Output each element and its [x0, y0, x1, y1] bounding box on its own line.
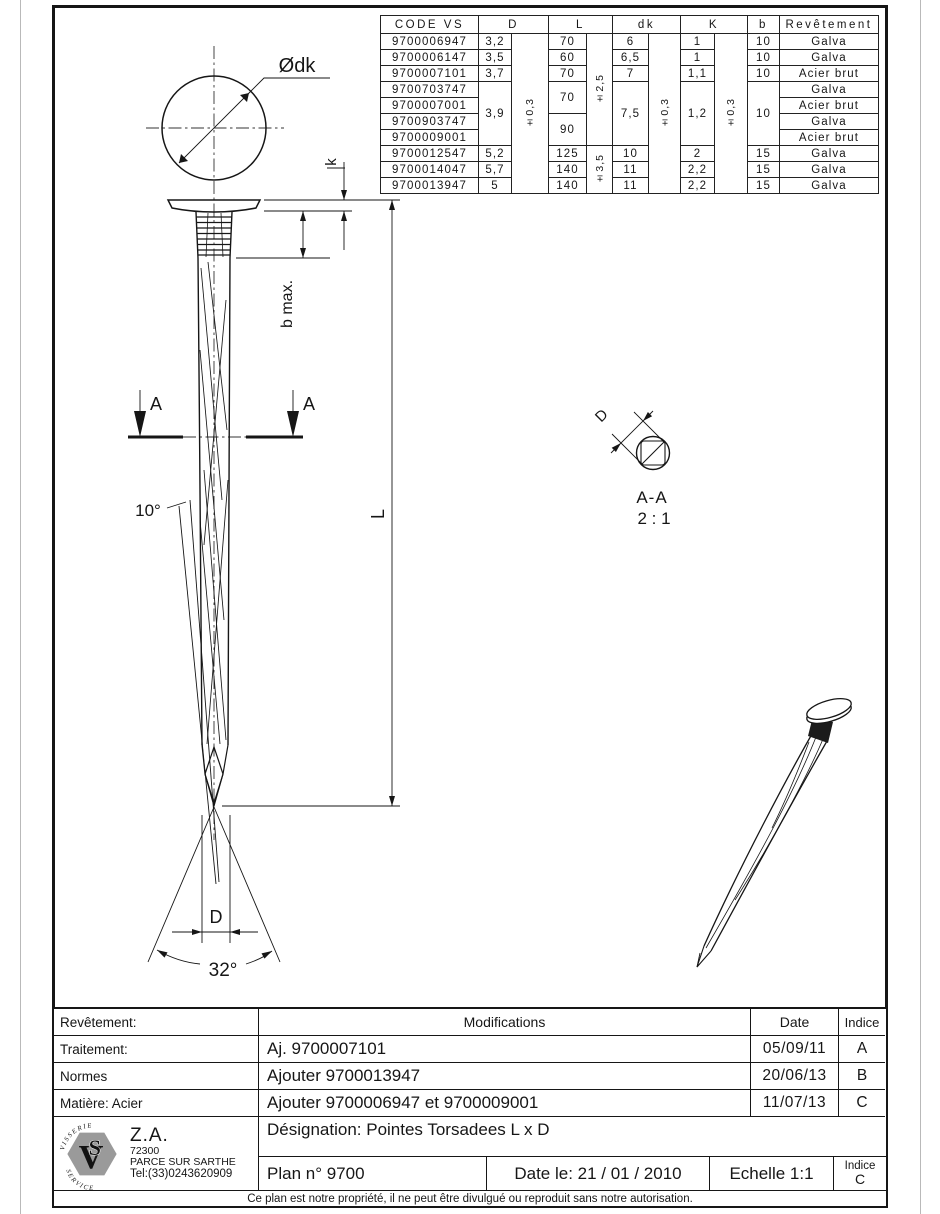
col-header-dk: dk	[613, 16, 681, 34]
dk-cell: 7	[613, 66, 649, 82]
logo-letter-s: S	[89, 1135, 101, 1159]
company-logo: V S V I S S E R I E S E R V I C E	[56, 1118, 128, 1190]
property-notice: Ce plan est notre propriété, il ne peut …	[54, 1190, 886, 1206]
indice-header: Indice	[839, 1009, 885, 1036]
k-cell: 2,2	[681, 162, 715, 178]
point-diameter-label: D	[210, 907, 223, 927]
company-city: PARCE SUR SARTHE	[130, 1157, 236, 1168]
indice-box: Indice C	[834, 1157, 886, 1190]
b-cell: 10	[748, 50, 780, 66]
matiere-label: Matière: Acier	[54, 1090, 259, 1117]
code-cell: 9700009001	[381, 130, 479, 146]
modification-date: 20/06/13	[751, 1063, 839, 1090]
modification-indice: A	[839, 1036, 885, 1063]
l-tolerance-top-cell: ±2,5	[587, 34, 613, 146]
d-cell: 3,2	[479, 34, 512, 50]
dk-cell: 11	[613, 162, 649, 178]
revetement-label: Revêtement:	[54, 1009, 259, 1036]
k-tolerance-cell: ±0,3	[715, 34, 748, 194]
traitement-label: Traitement:	[54, 1036, 259, 1063]
date-header: Date	[751, 1009, 839, 1036]
code-cell: 9700006947	[381, 34, 479, 50]
dk-tolerance-cell: ±0,3	[649, 34, 681, 194]
spec-row: 9700703747 3,9 70 7,5 1,2 10 Galva	[381, 82, 879, 98]
b-cell: 10	[748, 66, 780, 82]
l-tolerance-bottom-cell: ±3,5	[587, 146, 613, 194]
plan-number: Plan n° 9700	[259, 1157, 487, 1190]
b-cell: 10	[748, 34, 780, 50]
d-cell: 5	[479, 178, 512, 194]
modification-entry: Ajouter 9700013947	[259, 1063, 751, 1090]
designation: Désignation: Pointes Torsadees L x D	[259, 1117, 886, 1157]
rev-cell: Galva	[780, 114, 879, 130]
l-cell: 90	[549, 114, 587, 146]
plan-info-row: Plan n° 9700 Date le: 21 / 01 / 2010 Ech…	[259, 1157, 886, 1190]
head-diameter-label: Ødk	[279, 55, 317, 77]
company-cell: V S V I S S E R I E S E R V I C E Z.A. 7…	[54, 1117, 259, 1190]
section-scale: 2 : 1	[637, 509, 670, 528]
rev-cell: Acier brut	[780, 98, 879, 114]
ring-length-label: b max.	[279, 280, 296, 328]
code-cell: 9700703747	[381, 82, 479, 98]
k-cell: 1,2	[681, 82, 715, 146]
spec-row: 9700006947 3,2 ±0,3 70 ±2,5 6 ±0,3 1 ±0,…	[381, 34, 879, 50]
l-cell: 140	[549, 162, 587, 178]
d-cell: 3,9	[479, 82, 512, 146]
dk-cell: 10	[613, 146, 649, 162]
centerlines	[146, 46, 284, 840]
col-header-b: b	[748, 16, 780, 34]
l-cell: 125	[549, 146, 587, 162]
dimensions	[128, 162, 400, 964]
company-za: Z.A.	[130, 1126, 236, 1146]
dk-cell: 6,5	[613, 50, 649, 66]
spec-header-row: CODE VS D L dk K b Revêtement	[381, 16, 879, 34]
dk-cell: 6	[613, 34, 649, 50]
length-label: L	[368, 509, 388, 519]
modification-entry: Aj. 9700007101	[259, 1036, 751, 1063]
k-cell: 1,1	[681, 66, 715, 82]
d-cell: 3,7	[479, 66, 512, 82]
code-cell: 9700007101	[381, 66, 479, 82]
col-header-l: L	[549, 16, 613, 34]
modification-indice: B	[839, 1063, 885, 1090]
normes-label: Normes	[54, 1063, 259, 1090]
modifications-header: Modifications	[259, 1009, 751, 1036]
k-cell: 2	[681, 146, 715, 162]
modification-date: 11/07/13	[751, 1090, 839, 1117]
modifications-grid: Revêtement: Modifications Date Indice Tr…	[54, 1009, 886, 1117]
code-cell: 9700014047	[381, 162, 479, 178]
col-header-rev: Revêtement	[780, 16, 879, 34]
code-cell: 9700007001	[381, 98, 479, 114]
plan-date: Date le: 21 / 01 / 2010	[487, 1157, 710, 1190]
nail-point	[202, 745, 228, 806]
dimension-arrowheads	[134, 190, 395, 959]
spec-row: 9700012547 5,2 125 ±3,5 10 2 15 Galva	[381, 146, 879, 162]
rev-cell: Galva	[780, 162, 879, 178]
d-cell: 3,5	[479, 50, 512, 66]
b-cell: 15	[748, 178, 780, 194]
col-header-d: D	[479, 16, 549, 34]
title-block-right: Désignation: Pointes Torsadees L x D Pla…	[259, 1117, 886, 1190]
head-height-label: k	[323, 158, 340, 166]
scale: Echelle 1:1	[710, 1157, 834, 1190]
rev-cell: Galva	[780, 178, 879, 194]
d-cell: 5,2	[479, 146, 512, 162]
dk-cell: 11	[613, 178, 649, 194]
k-cell: 1	[681, 50, 715, 66]
l-cell: 70	[549, 66, 587, 82]
rev-cell: Acier brut	[780, 66, 879, 82]
section-diameter-label: D	[592, 406, 612, 426]
modification-date: 05/09/11	[751, 1036, 839, 1063]
spec-row: 9700014047 5,7 140 11 2,2 15 Galva	[381, 162, 879, 178]
title-block-main: V S V I S S E R I E S E R V I C E Z.A. 7…	[54, 1117, 886, 1190]
rev-cell: Galva	[780, 50, 879, 66]
l-tolerance-bottom: ±3,5	[594, 154, 606, 185]
d-tolerance: ±0,3	[524, 98, 536, 129]
code-cell: 9700012547	[381, 146, 479, 162]
k-cell: 1	[681, 34, 715, 50]
spec-table: CODE VS D L dk K b Revêtement 9700006947…	[380, 15, 879, 194]
technical-drawing-page: { "spec": { "headers": {"code":"CODE VS"…	[0, 0, 940, 1214]
twist-angle-label: 10°	[135, 501, 161, 520]
title-block: Revêtement: Modifications Date Indice Tr…	[52, 1007, 888, 1208]
code-cell: 9700013947	[381, 178, 479, 194]
spec-row: 9700006147 3,5 60 6,5 1 10 Galva	[381, 50, 879, 66]
b-cell: 10	[748, 82, 780, 146]
point-angle-label: 32°	[209, 960, 238, 981]
code-cell: 9700903747	[381, 114, 479, 130]
l-tolerance-top: ±2,5	[594, 74, 606, 105]
indice-box-value: C	[855, 1172, 865, 1187]
col-header-code: CODE VS	[381, 16, 479, 34]
dk-tolerance: ±0,3	[659, 98, 671, 129]
company-address: Z.A. 72300 PARCE SUR SARTHE Tel:(33)0243…	[130, 1126, 236, 1180]
nail-shank	[198, 258, 202, 745]
d-cell: 5,7	[479, 162, 512, 178]
dimension-labels: A A 10° k b max. L D 32°	[135, 158, 388, 981]
l-cell: 70	[549, 34, 587, 50]
rev-cell: Galva	[780, 146, 879, 162]
l-cell: 70	[549, 82, 587, 114]
k-cell: 2,2	[681, 178, 715, 194]
iso-view	[697, 694, 853, 967]
section-title: A-A	[636, 488, 667, 507]
section-mark-right: A	[303, 394, 315, 414]
l-cell: 140	[549, 178, 587, 194]
modification-indice: C	[839, 1090, 885, 1117]
code-cell: 9700006147	[381, 50, 479, 66]
b-cell: 15	[748, 162, 780, 178]
rev-cell: Galva	[780, 82, 879, 98]
spec-row: 9700007101 3,7 70 7 1,1 10 Acier brut	[381, 66, 879, 82]
company-phone: Tel:(33)0243620909	[130, 1168, 236, 1180]
k-tolerance: ±0,3	[725, 98, 737, 129]
b-cell: 15	[748, 146, 780, 162]
col-header-k: K	[681, 16, 748, 34]
rev-cell: Acier brut	[780, 130, 879, 146]
modification-entry: Ajouter 9700006947 et 9700009001	[259, 1090, 751, 1117]
section-view	[611, 411, 670, 470]
section-mark-left: A	[150, 394, 162, 414]
l-cell: 60	[549, 50, 587, 66]
spec-row: 9700013947 5 140 11 2,2 15 Galva	[381, 178, 879, 194]
dk-cell: 7,5	[613, 82, 649, 146]
d-tolerance-cell: ±0,3	[512, 34, 549, 194]
rev-cell: Galva	[780, 34, 879, 50]
